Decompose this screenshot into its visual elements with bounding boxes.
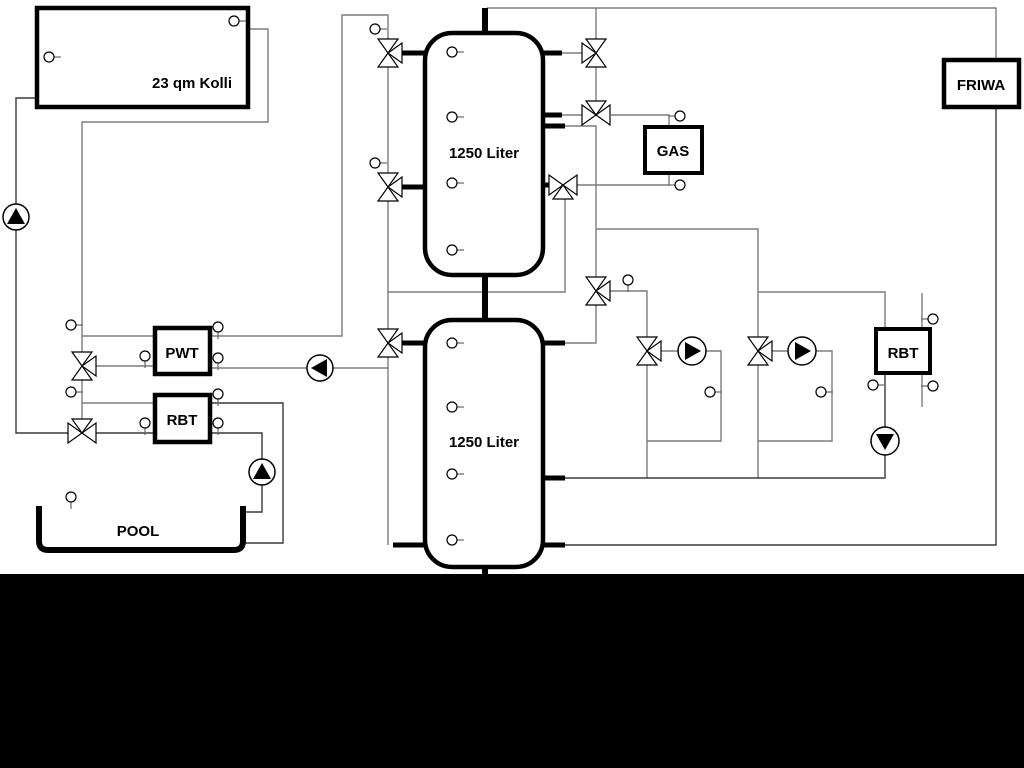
pwt-label: PWT xyxy=(165,345,198,362)
gas-label: GAS xyxy=(657,143,690,160)
hydraulic-schematic: 23 qm Kolli 1250 Liter 1250 Liter GAS FR… xyxy=(0,0,1024,768)
rbt-left-label: RBT xyxy=(167,412,198,429)
heating-circuit-2-pump-icon xyxy=(788,337,816,365)
footer-bar xyxy=(0,574,1024,768)
pwt-loop-pump-icon xyxy=(307,355,333,381)
schematic-page: 23 qm Kolli 1250 Liter 1250 Liter GAS FR… xyxy=(0,0,1024,768)
solar-pump-icon xyxy=(3,204,29,230)
pool-pump-icon xyxy=(249,459,275,485)
rbt-right-pump-icon xyxy=(871,427,899,455)
collector-label: 23 qm Kolli xyxy=(152,75,232,92)
tank1-label: 1250 Liter xyxy=(449,145,519,162)
tank2-label: 1250 Liter xyxy=(449,434,519,451)
solar-collector-box xyxy=(37,8,248,107)
friwa-label: FRIWA xyxy=(957,77,1005,94)
rbt-right-label: RBT xyxy=(888,345,919,362)
heating-circuit-1-pump-icon xyxy=(678,337,706,365)
pool-label: POOL xyxy=(117,523,160,540)
